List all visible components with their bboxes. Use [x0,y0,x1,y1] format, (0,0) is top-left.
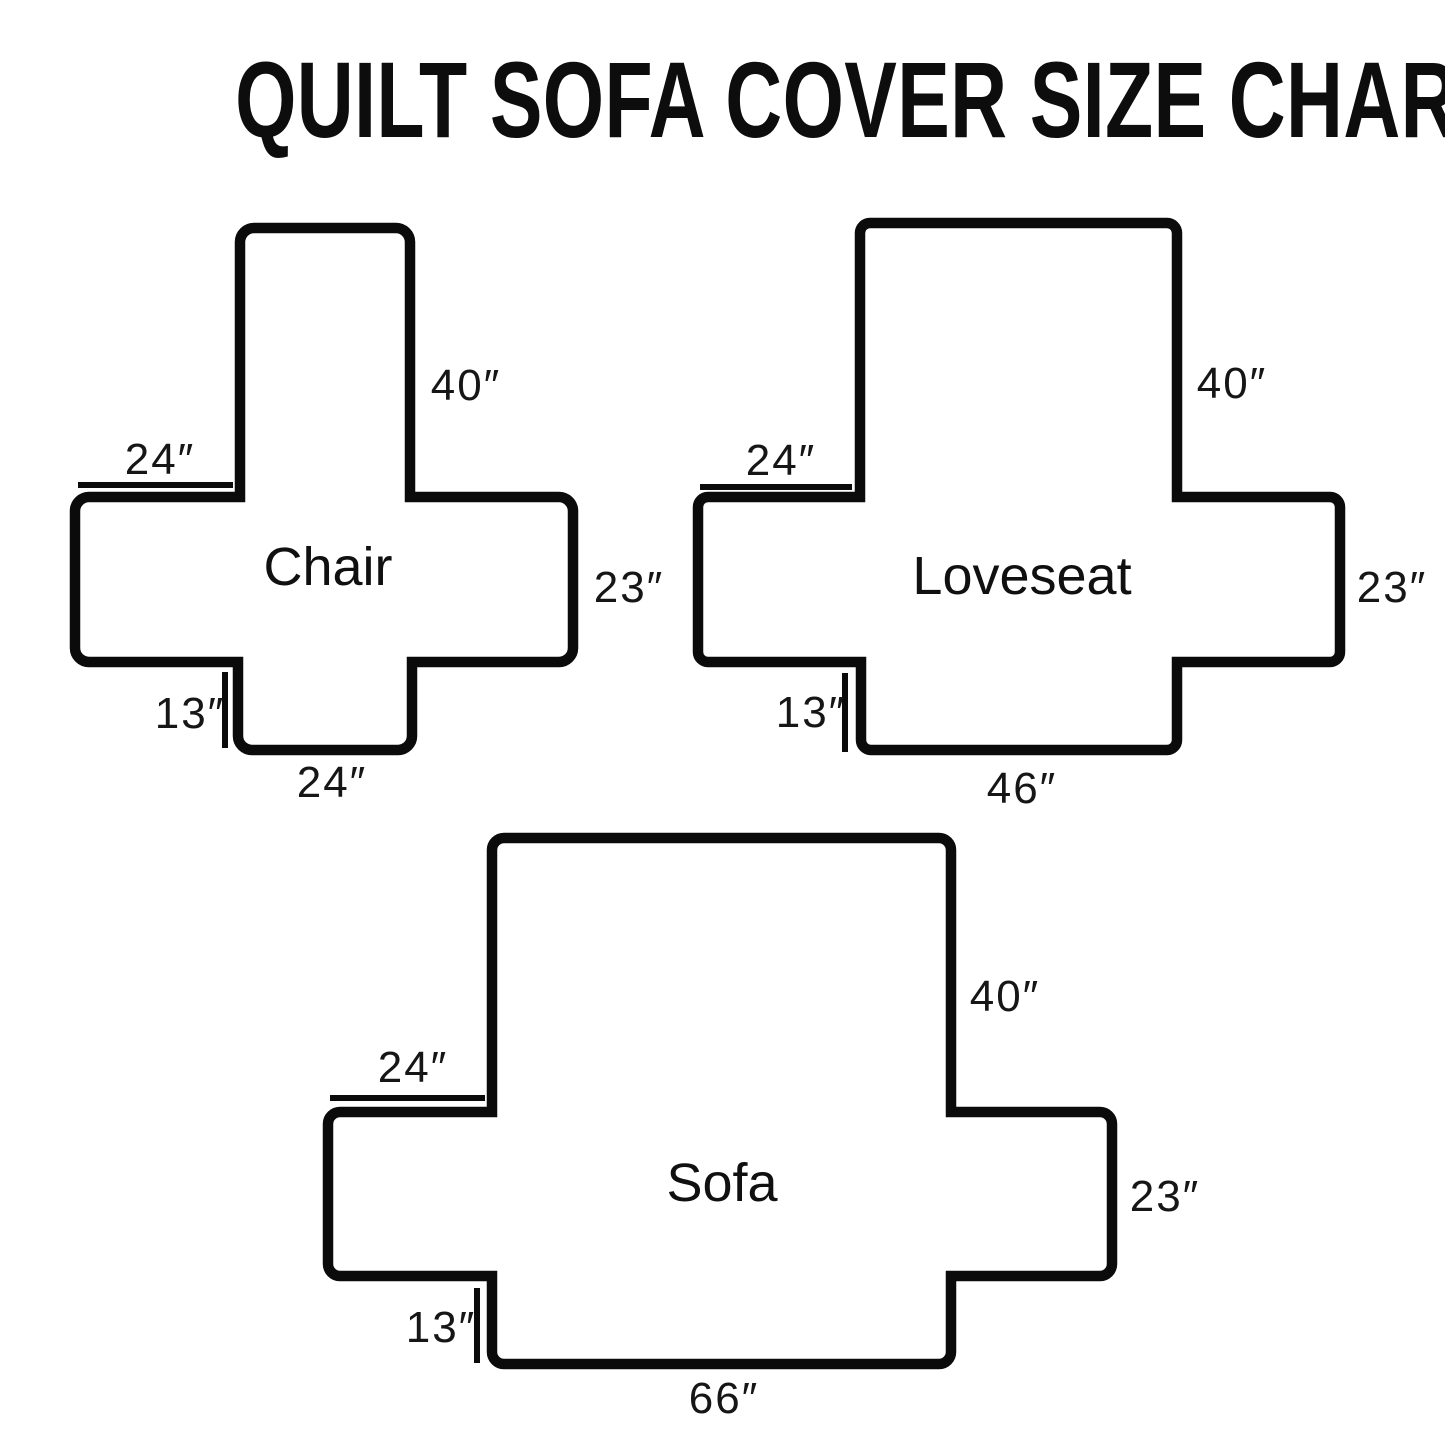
loveseat-back-height-label: 40″ [1197,359,1268,409]
size-chart-page: QUILT SOFA COVER SIZE CHART 40″ 24″ Chai… [0,0,1445,1435]
sofa-name-label: Sofa [666,1152,777,1214]
sofa-arm-width-label: 24″ [378,1043,449,1093]
chair-seat-width-label: 24″ [297,758,368,808]
chair-back-height-label: 40″ [431,361,502,411]
chair-name-label: Chair [263,536,392,598]
sofa-back-height-label: 40″ [970,972,1041,1022]
loveseat-front-drop-label: 13″ [776,688,847,738]
chair-front-drop-label: 13″ [155,689,226,739]
sofa-side-height-label: 23″ [1130,1172,1201,1222]
chair-cover-outline [75,228,573,750]
loveseat-arm-width-label: 24″ [746,436,817,486]
sofa-front-drop-label: 13″ [406,1303,477,1353]
chair-side-height-label: 23″ [594,563,665,613]
loveseat-name-label: Loveseat [912,545,1131,607]
chair-arm-width-label: 24″ [125,435,196,485]
loveseat-side-height-label: 23″ [1357,563,1428,613]
sofa-seat-width-label: 66″ [689,1374,760,1424]
loveseat-seat-width-label: 46″ [987,764,1058,814]
